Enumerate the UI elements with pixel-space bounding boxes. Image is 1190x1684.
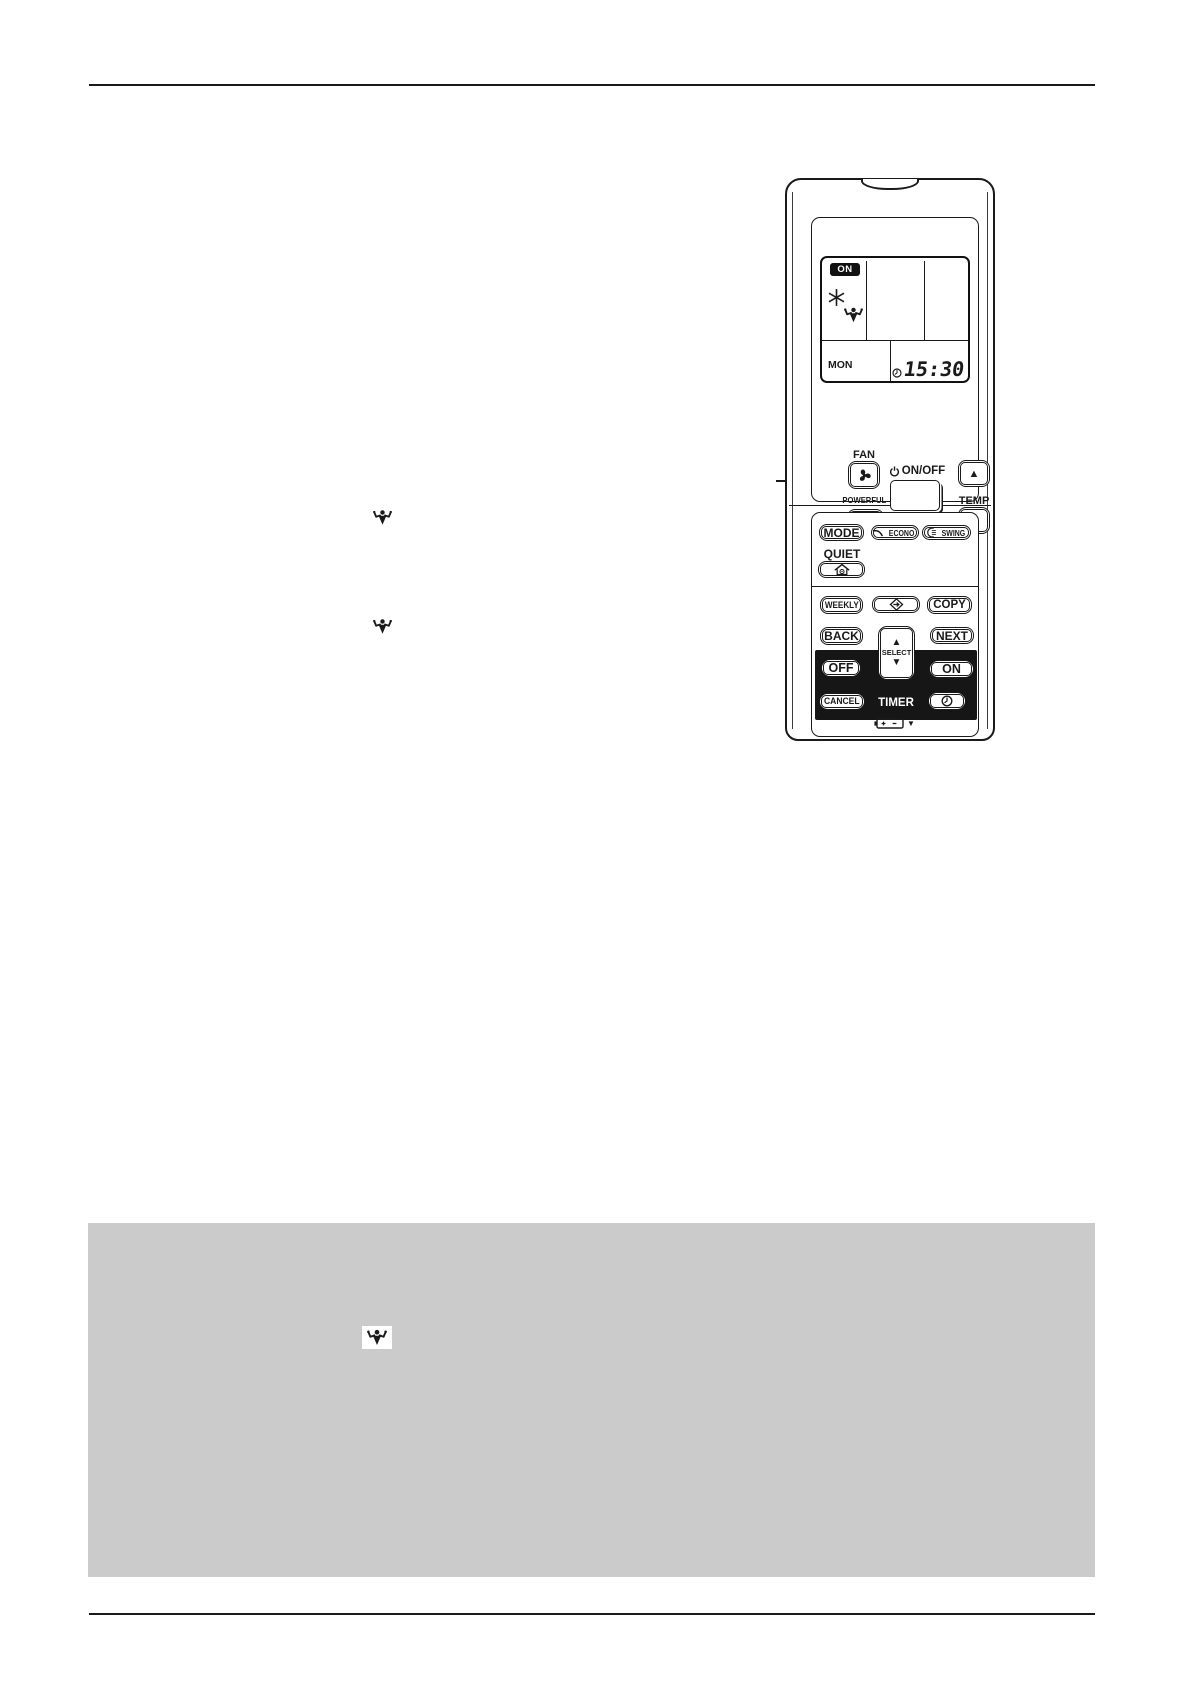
- fan-icon: [856, 467, 873, 484]
- lcd-divider: [822, 340, 968, 341]
- arrow-up-icon: ▲: [892, 638, 902, 648]
- note-box: [88, 1223, 1095, 1577]
- lcd-divider: [924, 261, 925, 340]
- clock-button: [928, 692, 966, 710]
- fan-button: [848, 461, 880, 489]
- battery-indicator: ▼: [874, 718, 915, 729]
- onoff-label: ON/OFF: [886, 465, 948, 477]
- temp-label: TEMP: [958, 495, 990, 507]
- case-edge-line: [792, 192, 793, 729]
- cancel-button: CANCEL: [819, 693, 865, 710]
- lcd-display: ON MON 15:30: [820, 256, 970, 383]
- lcd-time: 15:30: [902, 357, 966, 381]
- powerful-icon: [371, 509, 394, 526]
- snowflake-icon: [828, 289, 845, 306]
- next-button: NEXT: [930, 627, 974, 644]
- powerful-icon: [371, 618, 394, 635]
- quiet-label: QUIET: [817, 547, 867, 561]
- mode-button: MODE: [819, 524, 864, 541]
- program-button: [872, 596, 920, 613]
- panel-divider: [812, 586, 978, 587]
- onoff-button: [890, 480, 940, 511]
- bottom-rule: [89, 1613, 1095, 1615]
- lcd-divider: [866, 261, 867, 340]
- copy-button: COPY: [927, 596, 972, 614]
- swing-button: SWING: [922, 525, 971, 540]
- powerful-icon: [362, 1326, 392, 1349]
- timer-off-button: OFF: [821, 659, 861, 677]
- top-rule: [89, 84, 1095, 86]
- clock-icon: [892, 368, 902, 378]
- manual-page: DAIKIN ON MON 15:30 FAN: [0, 0, 1190, 1684]
- remote-control-illustration: DAIKIN ON MON 15:30 FAN: [785, 178, 995, 741]
- power-icon: [889, 466, 900, 477]
- remote-lower-panel: MODE ECONO SWING QUIET: [811, 512, 979, 737]
- temp-up-button: ▲: [958, 460, 990, 487]
- powerful-icon: [842, 307, 865, 323]
- swing-icon: [926, 527, 937, 538]
- ir-lens-notch: [861, 179, 919, 190]
- back-button: BACK: [820, 627, 863, 645]
- case-edge-line: [987, 192, 988, 729]
- clock-icon: [941, 695, 953, 707]
- remote-upper-panel: DAIKIN ON MON 15:30 FAN: [811, 217, 979, 502]
- econo-button: ECONO: [871, 525, 919, 540]
- lcd-on-indicator: ON: [830, 263, 860, 276]
- fan-label: FAN: [848, 449, 880, 461]
- lcd-day: MON: [828, 359, 853, 371]
- battery-icon: [874, 718, 904, 729]
- lcd-divider: [890, 341, 891, 381]
- timer-on-button: ON: [929, 660, 974, 678]
- quiet-button: [818, 561, 865, 578]
- arrow-up-icon: ▲: [969, 468, 980, 480]
- timer-label: TIMER: [868, 697, 924, 709]
- house-icon: [834, 563, 850, 576]
- weekly-button: WEEKLY: [820, 596, 863, 614]
- select-button: ▲ SELECT ▼: [878, 626, 915, 680]
- program-arrow-icon: [889, 598, 904, 611]
- arrow-down-icon: ▼: [892, 658, 902, 668]
- econo-icon: [872, 529, 884, 537]
- triangle-down-icon: ▼: [907, 720, 915, 728]
- powerful-label: POWERFUL: [836, 495, 892, 505]
